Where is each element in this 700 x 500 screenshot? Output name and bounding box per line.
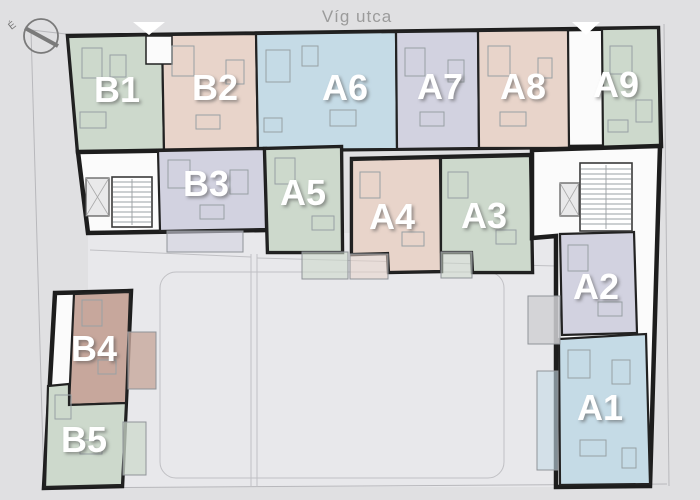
terrace-b5	[123, 422, 146, 475]
unit-a7-label: A7	[417, 66, 463, 107]
compass-north-label: É	[5, 18, 19, 33]
unit-a8-label: A8	[500, 66, 546, 107]
terrace-a2	[528, 296, 560, 344]
floorplan-page: É Víg utca B1 B2 A6 A7 A8 A9 B3 A5 A4 A3…	[0, 0, 700, 500]
unit-b1-label: B1	[94, 69, 140, 110]
elevator-left	[86, 178, 109, 216]
unit-b2-label: B2	[192, 67, 238, 108]
staircase-left	[112, 177, 152, 227]
unit-b4-label: B4	[71, 328, 117, 369]
balcony-b3	[167, 231, 243, 252]
staircase-right	[580, 163, 632, 231]
floor-plan: É Víg utca B1 B2 A6 A7 A8 A9 B3 A5 A4 A3…	[0, 0, 700, 500]
unit-b3-label: B3	[183, 163, 229, 204]
unit-a2-label: A2	[573, 266, 619, 307]
unit-a1-label: A1	[577, 387, 623, 428]
unit-a4-label: A4	[369, 196, 415, 237]
unit-a3-label: A3	[461, 195, 507, 236]
unit-b5-label: B5	[61, 419, 107, 460]
unit-a9-label: A9	[593, 64, 639, 105]
entrance-vestibule-left	[146, 36, 172, 64]
balcony-a5	[302, 252, 348, 279]
terrace-a1	[537, 371, 558, 470]
street-name-label: Víg utca	[322, 7, 392, 26]
terrace-b4	[128, 332, 156, 389]
unit-a6-label: A6	[322, 67, 368, 108]
elevator-right	[560, 183, 579, 216]
unit-a5-label: A5	[280, 172, 326, 213]
balcony-a4	[350, 254, 388, 279]
balcony-a3	[441, 252, 472, 278]
